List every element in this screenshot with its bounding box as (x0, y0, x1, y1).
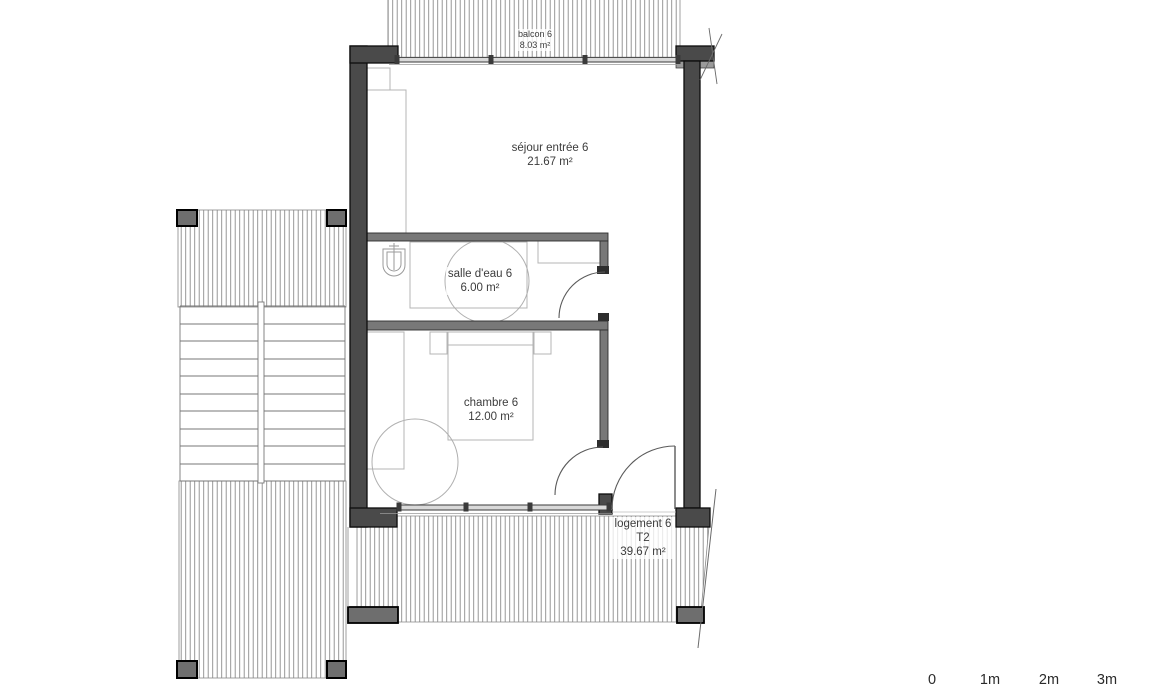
bathroom-door-swing (559, 272, 605, 318)
terrace-stub-right (677, 607, 704, 623)
unit-name: logement 6 (615, 517, 672, 531)
sejour-kitchen-counter (367, 90, 406, 233)
post-top-left (177, 210, 197, 226)
bathroom-top-wall (367, 233, 608, 241)
staircase (180, 302, 345, 483)
floor-plan-drawing (0, 0, 1170, 694)
bottom-left-corner (350, 508, 397, 527)
room-label-balcon: balcon 6 8.03 m² (516, 29, 554, 51)
bottom-right-corner (676, 508, 710, 527)
nightstand-right (534, 332, 551, 354)
bedroom-door-swing (555, 447, 603, 495)
room-name: balcon 6 (518, 29, 552, 40)
post-bottom-left (177, 661, 197, 678)
unit-label: logement 6 T2 39.67 m² (613, 517, 674, 559)
doors (555, 272, 675, 509)
scale-tick-1m: 1m (980, 672, 1000, 688)
room-label-chambre: chambre 6 12.00 m² (462, 396, 520, 424)
top-right-bar (676, 46, 714, 61)
stair-landing-hatch (178, 210, 346, 307)
bedroom-right-wall (600, 330, 608, 447)
nightstand-left (430, 332, 447, 354)
entry-door-swing (612, 446, 675, 509)
right-wall (684, 61, 700, 508)
room-name: salle d'eau 6 (448, 267, 512, 281)
room-area: 8.03 m² (518, 40, 552, 51)
room-label-sejour: séjour entrée 6 21.67 m² (510, 141, 591, 169)
terrace-stub-left (348, 607, 398, 623)
sejour-cabinet-top (367, 68, 390, 90)
room-area: 21.67 m² (512, 155, 589, 169)
scale-tick-0: 0 (928, 672, 936, 688)
wardrobe (367, 332, 404, 469)
scale-tick-2m: 2m (1039, 672, 1059, 688)
unit-type: T2 (615, 531, 672, 545)
room-area: 6.00 m² (448, 281, 512, 295)
deck-hatch (179, 481, 346, 678)
room-name: séjour entrée 6 (512, 141, 589, 155)
scale-tick-3m: 3m (1097, 672, 1117, 688)
stair-rail (258, 302, 264, 483)
post-top-right (327, 210, 346, 226)
washbasin-counter (538, 240, 600, 263)
wc-icon (383, 243, 405, 276)
unit-area: 39.67 m² (615, 545, 672, 559)
floor-plan-canvas: balcon 6 8.03 m² séjour entrée 6 21.67 m… (0, 0, 1170, 694)
room-area: 12.00 m² (464, 410, 518, 424)
left-wall (350, 46, 367, 527)
post-bottom-right (327, 661, 346, 678)
room-label-salle-eau: salle d'eau 6 6.00 m² (446, 267, 514, 295)
top-left-corner (350, 46, 398, 63)
bathroom-bedroom-divider (367, 321, 608, 330)
room-name: chambre 6 (464, 396, 518, 410)
